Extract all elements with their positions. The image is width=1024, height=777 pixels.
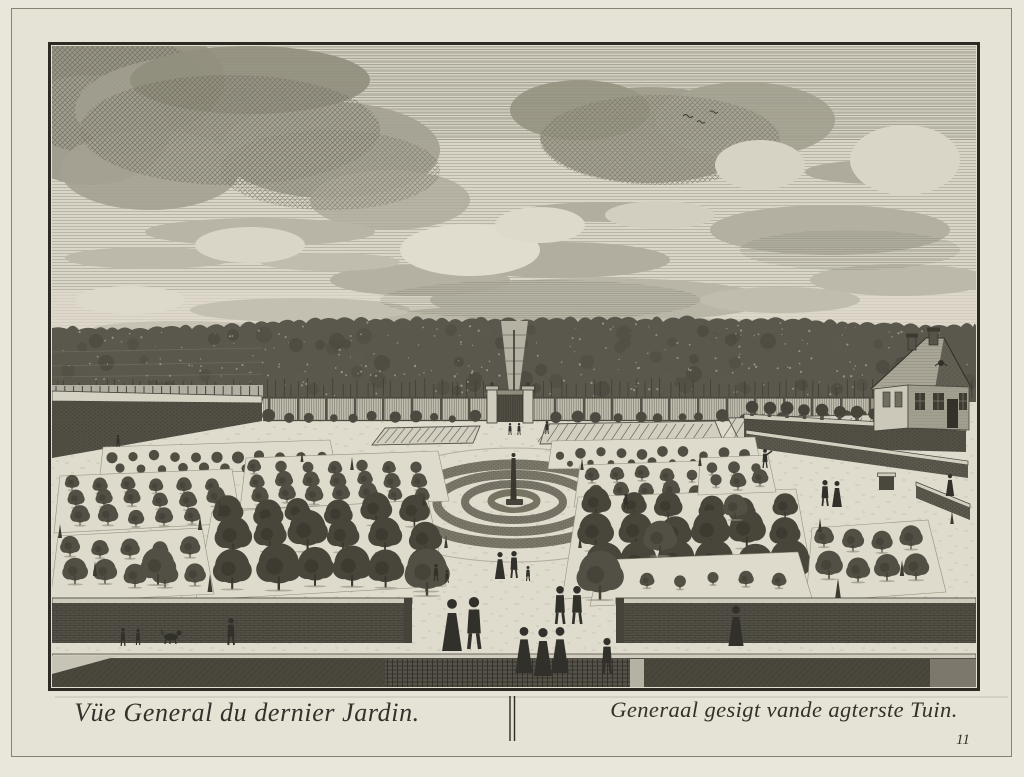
svg-text:11: 11 bbox=[956, 732, 970, 748]
svg-text:Vüe General du dernier Jardin.: Vüe General du dernier Jardin. bbox=[74, 698, 420, 727]
svg-text:Generaal gesigt vande agterste: Generaal gesigt vande agterste Tuin. bbox=[610, 697, 957, 722]
